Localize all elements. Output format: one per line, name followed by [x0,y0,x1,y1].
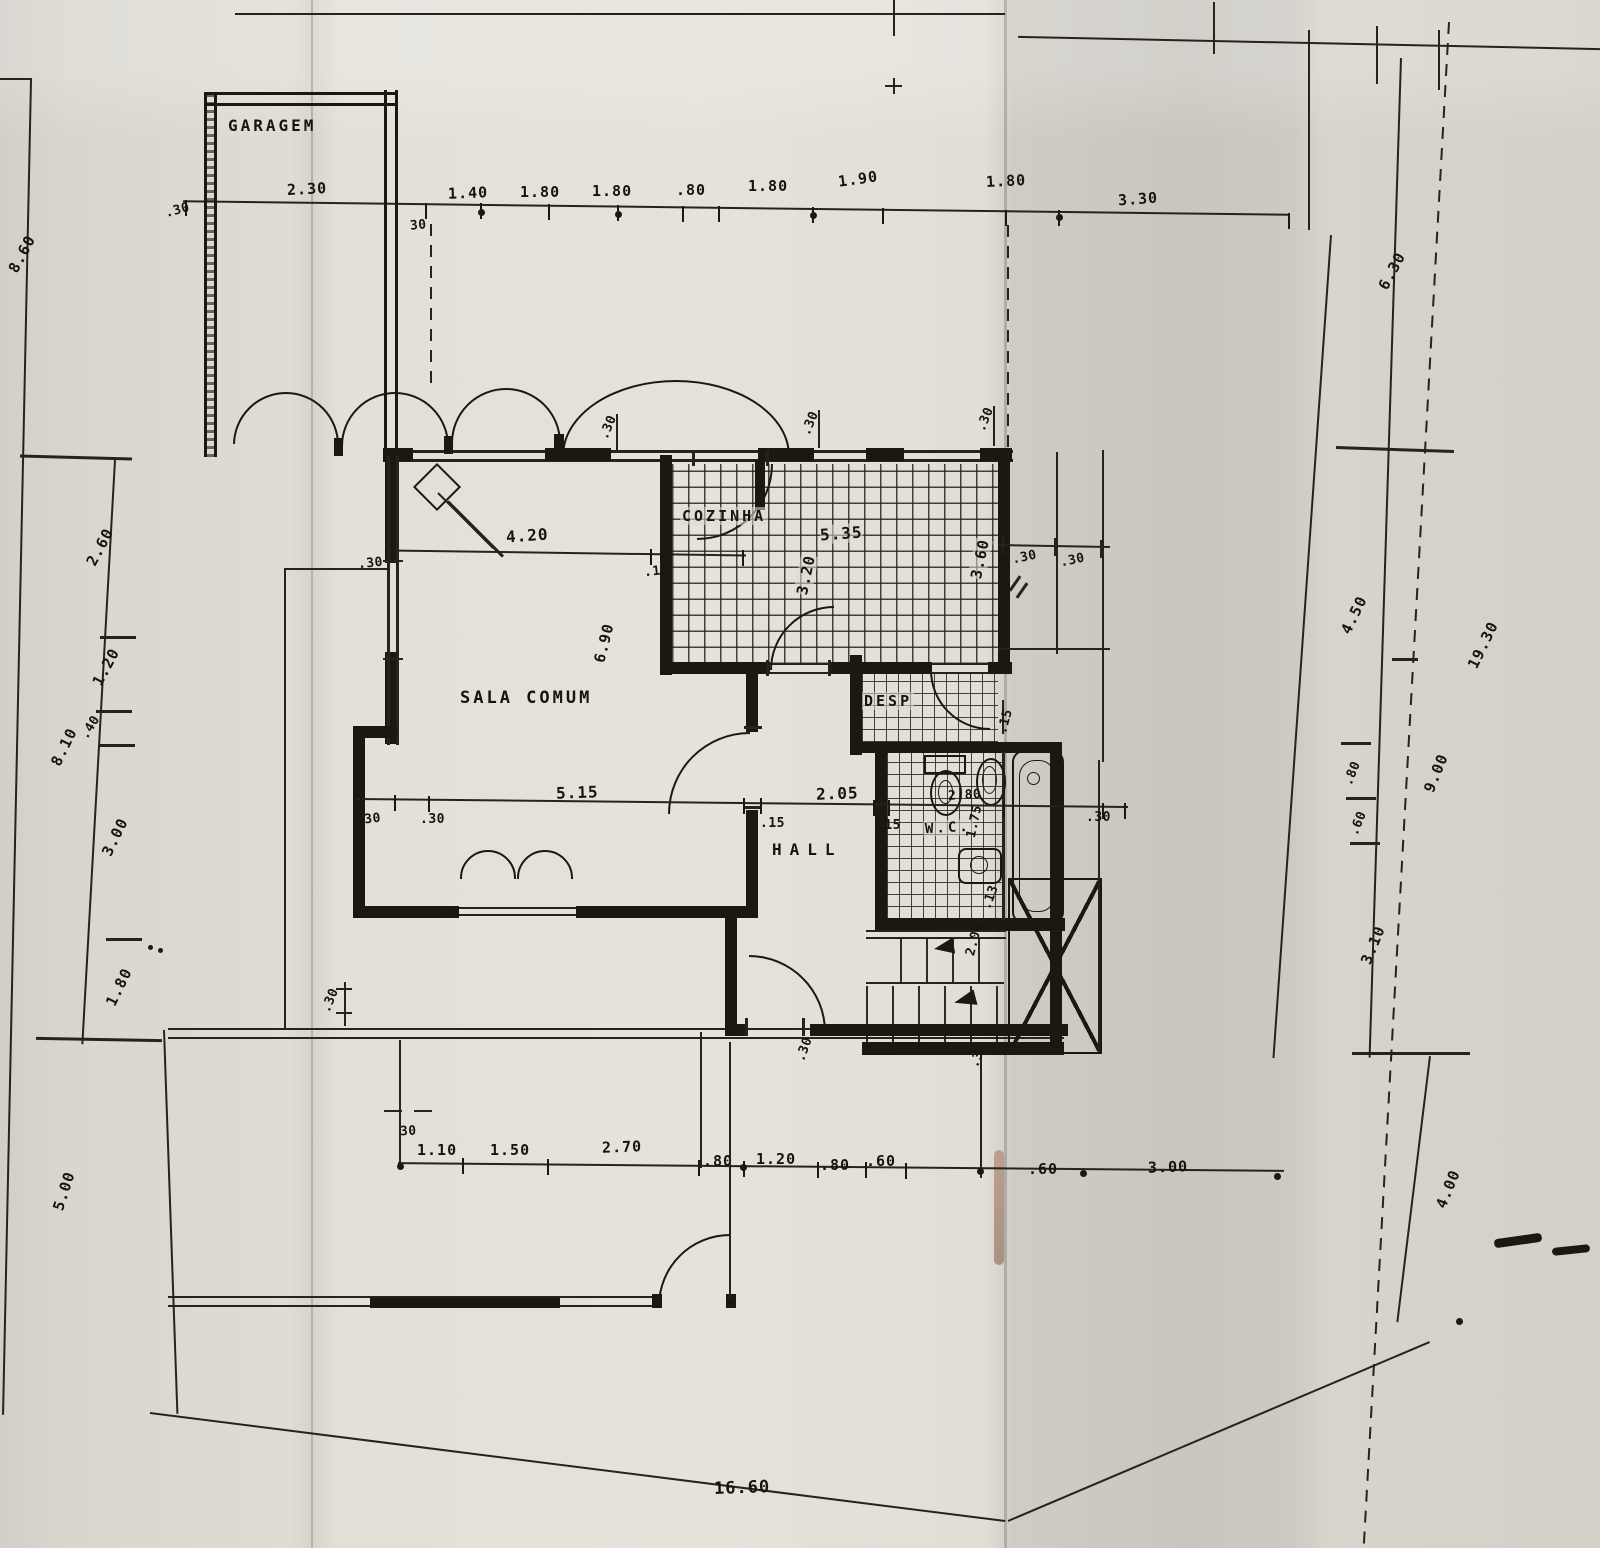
dim-dot [1274,1173,1281,1180]
dim-label: 6.30 [1375,249,1410,293]
bathtub-drain [1027,772,1040,785]
wall [746,672,758,732]
wall-thin [396,455,399,745]
garage-wall [214,95,217,457]
dim-tick [336,1012,352,1014]
dim-label: 1.40 [448,183,489,202]
porch-column [334,438,343,456]
arch-curve [517,850,573,879]
porch-arch [232,392,340,444]
site-tick [1213,2,1215,54]
dim-tick [760,798,762,814]
stair-treads [866,986,1002,1044]
dim-tick [392,545,394,561]
dim-label: 5.35 [819,523,863,545]
dim-tick [1124,803,1126,819]
dim-tick [394,795,396,811]
dim-line-right-inner [1272,235,1332,1058]
arch-curve [460,850,516,879]
dim-label: 4.00 [1432,1167,1464,1211]
dim-label: 30 [400,1124,417,1140]
wall-pier [866,448,904,461]
room-label-hall: HALL [772,840,843,859]
dim-label: .80 [820,1156,850,1174]
dim-tick [428,796,430,812]
fireplace-diamond [413,463,461,511]
dim-tick [873,800,875,816]
dim-label: 19.30 [1464,619,1502,672]
door-jamb [692,450,695,466]
dim-label: 5.00 [49,1169,79,1213]
section-chevron [1016,582,1029,598]
wall [576,906,748,918]
dim-tick [384,1110,402,1112]
dim-label: .15 [760,816,785,831]
dim-dot [1456,1318,1463,1325]
dim-label: .30 [357,555,383,573]
dim-label: 30 [409,217,427,233]
door-swing-arc [640,923,858,1141]
wall [850,655,862,755]
dim-label: .80 [676,181,706,199]
dim-tick [1341,742,1371,745]
dim-dot [397,1163,404,1170]
dim-label: 1.80 [748,177,788,195]
ext-line [399,1040,401,1168]
garage-wall [204,92,398,95]
dim-tick [1003,801,1005,817]
wall-thin [459,914,577,916]
dim-label: 1.10 [417,1141,457,1159]
dim-label: 1.20 [756,1150,796,1168]
garage-wall [204,103,398,106]
dim-tick [650,549,652,565]
fold-mark [1494,1233,1543,1249]
paper-fold-line [311,0,313,1548]
dim-dot [1056,214,1063,221]
dim-tick [817,1162,819,1178]
void-crossed-box [1008,878,1102,1054]
dim-label: 9.00 [1420,751,1452,795]
dim-label: .60 [866,1152,896,1170]
garden-wall [284,568,286,1030]
dim-label: 1.20 [89,645,124,689]
site-tick [1438,30,1440,90]
dim-label: .80 [1341,759,1364,788]
ext-line-dashed [430,224,432,388]
floor-plan-sheet: .30 2.30 30 1.40 1.80 1.80 .80 1.80 1.90… [0,0,1600,1548]
door-jamb [745,1018,748,1036]
dim-label: 2.30 [287,179,328,199]
dim-tick [888,800,890,816]
dim-dot [478,209,485,216]
door-jamb [766,660,769,676]
dim-label: .60 [1028,1160,1058,1178]
wall [660,662,770,674]
site-line [235,13,1005,15]
bidet-inner [982,766,997,794]
dim-label: 8.10 [47,725,81,769]
dim-tick [100,636,136,639]
site-tick [1376,26,1378,84]
arch-curve [451,388,561,446]
porch-column [444,436,453,454]
dim-label: .60 [1347,809,1370,838]
dim-tick [698,1160,700,1176]
dim-tick [1100,540,1102,558]
lot-boundary [163,1030,178,1414]
dim-label: .30 [420,812,445,827]
dim-tick [743,798,745,814]
room-label-pantry: DESP [862,692,914,710]
dim-label: 1.80 [592,182,632,200]
dim-dot [977,1168,984,1175]
garage-wall-hatch [207,95,214,457]
dim-label: .30 [1086,810,1111,825]
dim-tick [882,208,884,224]
dim-dot [740,1164,747,1171]
door-jamb [766,450,769,466]
dim-line-left-outer [2,80,32,1415]
dim-tick [1288,213,1290,229]
dim-dot [158,948,163,953]
dim-label: .30 [1059,551,1087,571]
site-tick [885,85,902,87]
door-jamb [802,1018,805,1036]
dim-label: .30 [1011,548,1039,568]
dim-tick [1346,797,1376,800]
dim-label: 2.05 [816,783,859,803]
fold-mark [1552,1244,1591,1256]
dim-dot [615,211,622,218]
dim-tick [0,78,32,80]
dim-tick [905,1163,907,1179]
dim-label: 1.50 [490,1141,530,1159]
dim-label: 2.60 [83,525,118,569]
tub-ledge-hatch [1016,742,1060,752]
dim-label: .15 [876,818,901,833]
dim-tick [548,204,550,220]
dim-tick [106,938,142,941]
dim-label: .30 [163,200,191,221]
site-tick [893,0,895,36]
wall [353,906,459,918]
door-jamb [744,726,762,729]
dim-label: 1.90 [837,167,879,190]
french-door-arc [460,850,517,879]
dim-tick [1054,538,1056,556]
dim-tick [414,1110,432,1112]
sink-basin [970,856,988,874]
room-label-living: SALA COMUM [460,688,592,708]
dim-tick [462,1158,464,1174]
dim-label: 2.70 [602,1137,643,1156]
porch-arch [340,392,450,446]
dim-label: 3.00 [98,815,132,859]
dim-tick [99,744,135,747]
dim-tick [1336,446,1454,453]
dim-label: 5.15 [556,782,599,802]
dim-label: 4.50 [1337,593,1371,637]
dim-tick [96,710,132,713]
dim-dot [1080,1170,1087,1177]
dim-tick [1002,536,1004,554]
dim-label: 6.90 [590,621,617,664]
dim-label: 4.20 [505,525,549,547]
dim-tick [1058,802,1060,818]
door-jamb [828,660,831,676]
dim-label: .30 [319,986,342,1015]
dim-tick [360,795,362,811]
wall [875,748,887,930]
side-wall-line [1098,760,1100,1052]
dim-line-right-mid [1369,58,1402,1058]
stair-landing-line [866,982,1004,984]
arch-curve [233,392,339,444]
dim-label-lot-width: 16.60 [714,1477,771,1499]
fireplace-corner-line [437,492,494,549]
side-wall-line [1056,452,1058,654]
ext-line-dashed [1007,225,1009,450]
window-tick [383,658,403,660]
dim-label: 2.80 [948,787,982,804]
lot-boundary [150,1412,1005,1522]
site-tick [1308,30,1310,230]
dim-line-right-mid [1396,1056,1431,1322]
dim-label: 1.80 [102,965,136,1009]
fence-gate [370,1298,560,1308]
dim-tick [718,206,720,222]
porch-column [554,434,564,454]
room-label-kitchen: COZINHA [680,507,768,525]
dim-label: 1.80 [520,183,560,201]
dim-dot [810,212,817,219]
dim-label: 3.30 [1117,189,1158,210]
wall-thin [459,907,577,909]
dim-tick [36,1037,162,1042]
wall-thin [387,455,390,745]
stair-rail [866,930,1006,932]
room-label-garage: GARAGEM [228,116,316,135]
french-door-arc [517,850,574,879]
dim-label: .30 [355,811,381,829]
dim-label: 8.60 [5,232,40,276]
dim-dot [148,945,153,950]
porch-arch [450,388,562,446]
dim-label: 1.80 [986,171,1027,191]
dim-tick [1005,210,1007,226]
arch-curve [341,392,449,446]
dim-tick [682,206,684,222]
side-wall-line [1102,450,1104,762]
dim-tick [547,1159,549,1175]
dim-label: 3.00 [1148,1157,1189,1176]
